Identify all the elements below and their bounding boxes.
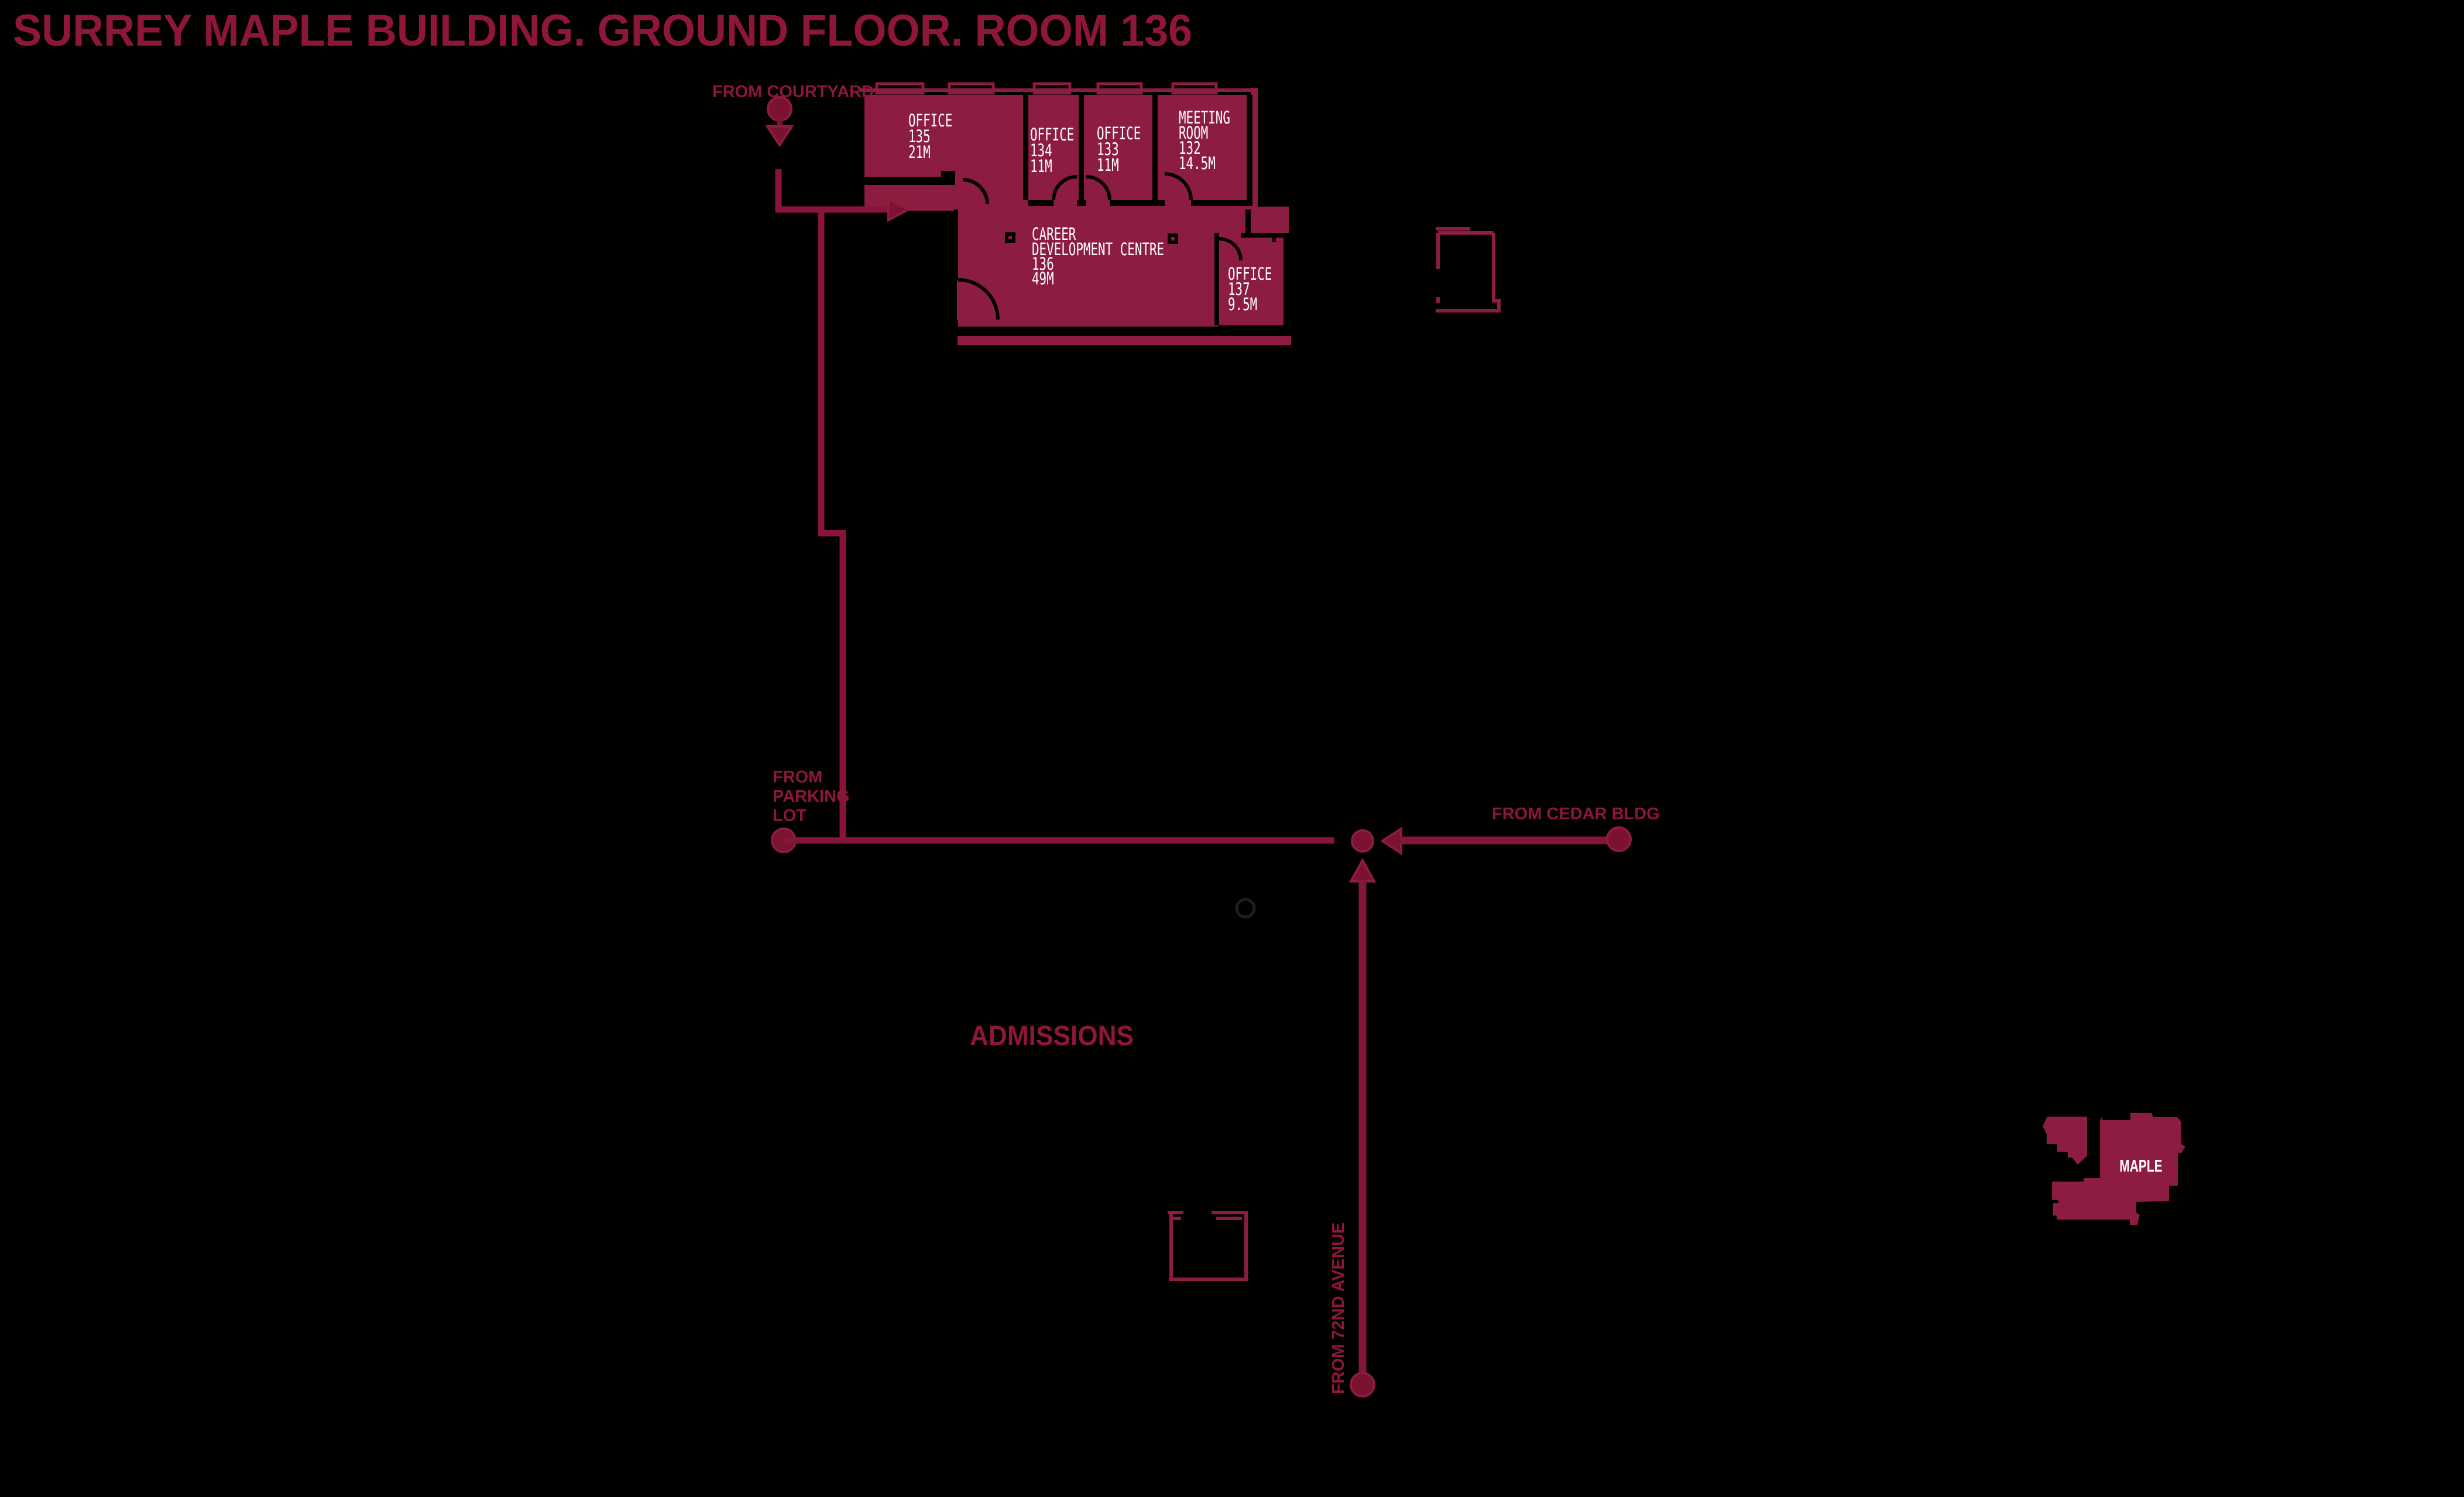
exterior-wall-south <box>958 336 1291 345</box>
wall-segment <box>864 177 955 185</box>
wall-segment <box>1023 95 1028 200</box>
room-label-office-137: 9.5M <box>1228 295 1257 314</box>
room-label-office-133: 11M <box>1097 156 1119 175</box>
wall-segment <box>1247 95 1252 206</box>
entry-label-parking: LOT <box>773 806 807 825</box>
entry-label-parking: PARKING <box>773 787 850 806</box>
wall-segment <box>1152 95 1158 200</box>
floor-plan-canvas: SURREY MAPLE BUILDING. GROUND FLOOR. ROO… <box>0 0 2464 1497</box>
cedar-start-dot <box>1607 828 1631 851</box>
wall-segment <box>954 327 1291 332</box>
wall-segment <box>1079 95 1084 200</box>
column-inner <box>1008 236 1012 239</box>
wall-segment <box>1284 236 1289 325</box>
entry-label-courtyard: FROM COURTYARD <box>712 83 874 101</box>
admissions-label: ADMISSIONS <box>970 1021 1134 1052</box>
minimap-building-label: MAPLE <box>2119 1157 2162 1176</box>
avenue72-start-dot <box>1351 1373 1374 1396</box>
wall-segment <box>1241 233 1289 238</box>
wall-segment <box>1077 200 1086 206</box>
wall-segment <box>954 210 958 280</box>
wall-segment <box>1214 233 1219 238</box>
wall-segment <box>1191 200 1252 206</box>
wall-segment <box>1272 233 1276 242</box>
page-title: SURREY MAPLE BUILDING. GROUND FLOOR. ROO… <box>13 6 1192 56</box>
junction-dot <box>1352 830 1373 851</box>
room-label-meeting-132: 14.5M <box>1179 154 1216 173</box>
wall-segment <box>1214 236 1219 325</box>
room-label-office-134: 11M <box>1030 157 1052 176</box>
entry-label-avenue72: FROM 72ND AVENUE <box>1329 1223 1348 1394</box>
wall-segment <box>1028 200 1053 206</box>
entry-label-cedar: FROM CEDAR BLDG <box>1492 805 1660 823</box>
column-inner <box>1171 237 1175 241</box>
room-label-career-centre: 49M <box>1032 269 1054 289</box>
entry-label-parking: FROM <box>773 768 822 787</box>
wall-segment <box>1110 200 1165 206</box>
window-strip <box>860 84 1254 93</box>
wall-segment <box>941 171 955 178</box>
room-label-office-135: 21M <box>908 143 931 162</box>
wall-segment <box>1245 210 1251 233</box>
exterior-wall-line <box>860 88 1254 92</box>
